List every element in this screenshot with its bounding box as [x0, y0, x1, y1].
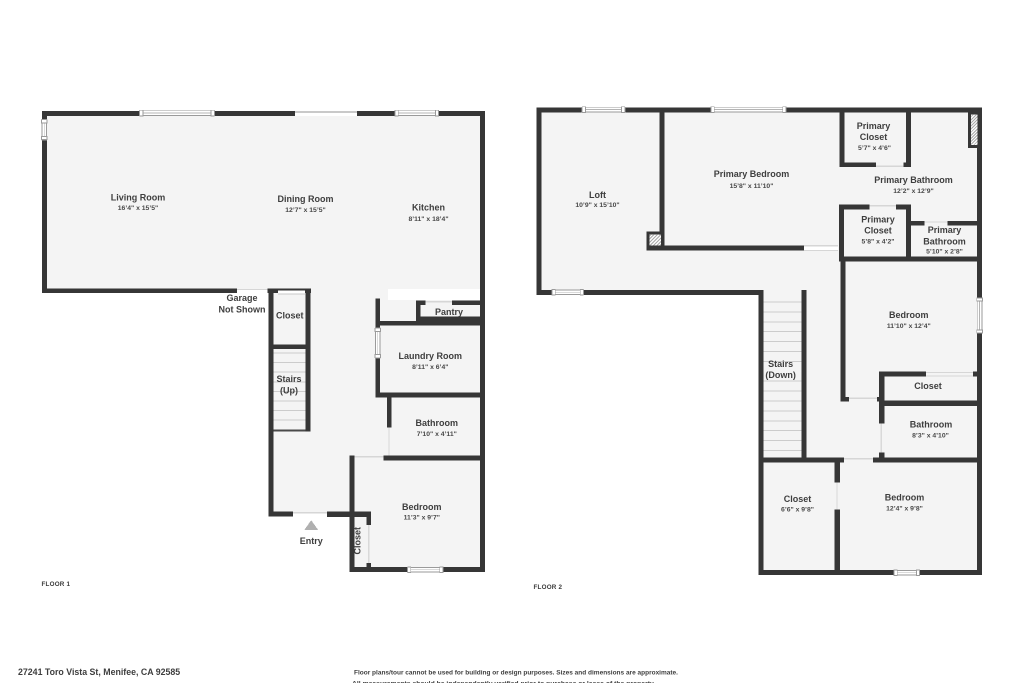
- svg-text:16’4" x 15’5": 16’4" x 15’5": [118, 205, 158, 212]
- svg-text:8’11" x 18’4": 8’11" x 18’4": [408, 216, 448, 223]
- svg-text:(Up): (Up): [280, 385, 298, 395]
- svg-text:Garage: Garage: [226, 293, 257, 303]
- svg-text:Kitchen: Kitchen: [412, 202, 445, 212]
- svg-text:(Down): (Down): [765, 370, 796, 380]
- svg-text:Primary Bathroom: Primary Bathroom: [874, 175, 953, 185]
- svg-text:Bathroom: Bathroom: [416, 418, 459, 428]
- svg-text:Closet: Closet: [276, 311, 304, 321]
- svg-text:Primary: Primary: [861, 214, 895, 224]
- svg-text:FLOOR 2: FLOOR 2: [534, 584, 563, 591]
- svg-text:5’8" x 4’2": 5’8" x 4’2": [862, 238, 895, 245]
- svg-text:Closet: Closet: [784, 494, 812, 504]
- svg-text:8’3" x 4’10": 8’3" x 4’10": [912, 432, 949, 439]
- svg-text:10’9" x 15’10": 10’9" x 15’10": [575, 202, 619, 209]
- svg-text:Loft: Loft: [589, 190, 606, 200]
- svg-text:6’6" x 9’8": 6’6" x 9’8": [781, 507, 814, 514]
- svg-text:5’7" x 4’6": 5’7" x 4’6": [858, 145, 891, 152]
- svg-text:Stairs: Stairs: [276, 374, 301, 384]
- svg-text:Floor plans/tour cannot be use: Floor plans/tour cannot be used for buil…: [354, 669, 678, 676]
- svg-text:12’2" x 12’9": 12’2" x 12’9": [893, 188, 933, 195]
- svg-text:Closet: Closet: [914, 381, 942, 391]
- svg-text:Bedroom: Bedroom: [889, 310, 929, 320]
- svg-text:Primary: Primary: [857, 121, 891, 131]
- svg-text:Primary Bedroom: Primary Bedroom: [714, 169, 790, 179]
- svg-text:Living Room: Living Room: [111, 192, 166, 202]
- svg-text:15’8" x 11’10": 15’8" x 11’10": [730, 183, 774, 190]
- svg-text:Bathroom: Bathroom: [923, 236, 966, 246]
- svg-text:5’10" x 2’8": 5’10" x 2’8": [926, 249, 963, 256]
- svg-text:Entry: Entry: [300, 536, 323, 546]
- svg-text:12’4" x 9’8": 12’4" x 9’8": [886, 505, 923, 512]
- svg-text:27241 Toro Vista St, Menifee,: 27241 Toro Vista St, Menifee, CA 92585: [18, 667, 180, 677]
- svg-text:Bedroom: Bedroom: [402, 502, 442, 512]
- svg-text:8’11" x 6’4": 8’11" x 6’4": [412, 364, 448, 371]
- svg-text:11’10" x 12’4": 11’10" x 12’4": [887, 323, 931, 330]
- svg-text:11’3" x 9’7": 11’3" x 9’7": [404, 515, 440, 522]
- svg-text:Dining Room: Dining Room: [278, 194, 334, 204]
- svg-text:Bathroom: Bathroom: [910, 420, 953, 430]
- svg-text:Pantry: Pantry: [435, 307, 463, 317]
- svg-text:Closet: Closet: [860, 132, 888, 142]
- svg-text:Stairs: Stairs: [768, 359, 793, 369]
- svg-text:Primary: Primary: [928, 225, 962, 235]
- svg-text:Bedroom: Bedroom: [885, 492, 925, 502]
- svg-text:Closet: Closet: [352, 527, 362, 555]
- svg-text:Not Shown: Not Shown: [219, 304, 266, 314]
- svg-text:Laundry Room: Laundry Room: [399, 351, 463, 361]
- svg-text:Closet: Closet: [864, 226, 892, 236]
- svg-text:FLOOR 1: FLOOR 1: [42, 581, 71, 588]
- svg-text:7’10" x 4’11": 7’10" x 4’11": [417, 431, 457, 438]
- svg-text:12’7" x 15’5": 12’7" x 15’5": [285, 207, 325, 214]
